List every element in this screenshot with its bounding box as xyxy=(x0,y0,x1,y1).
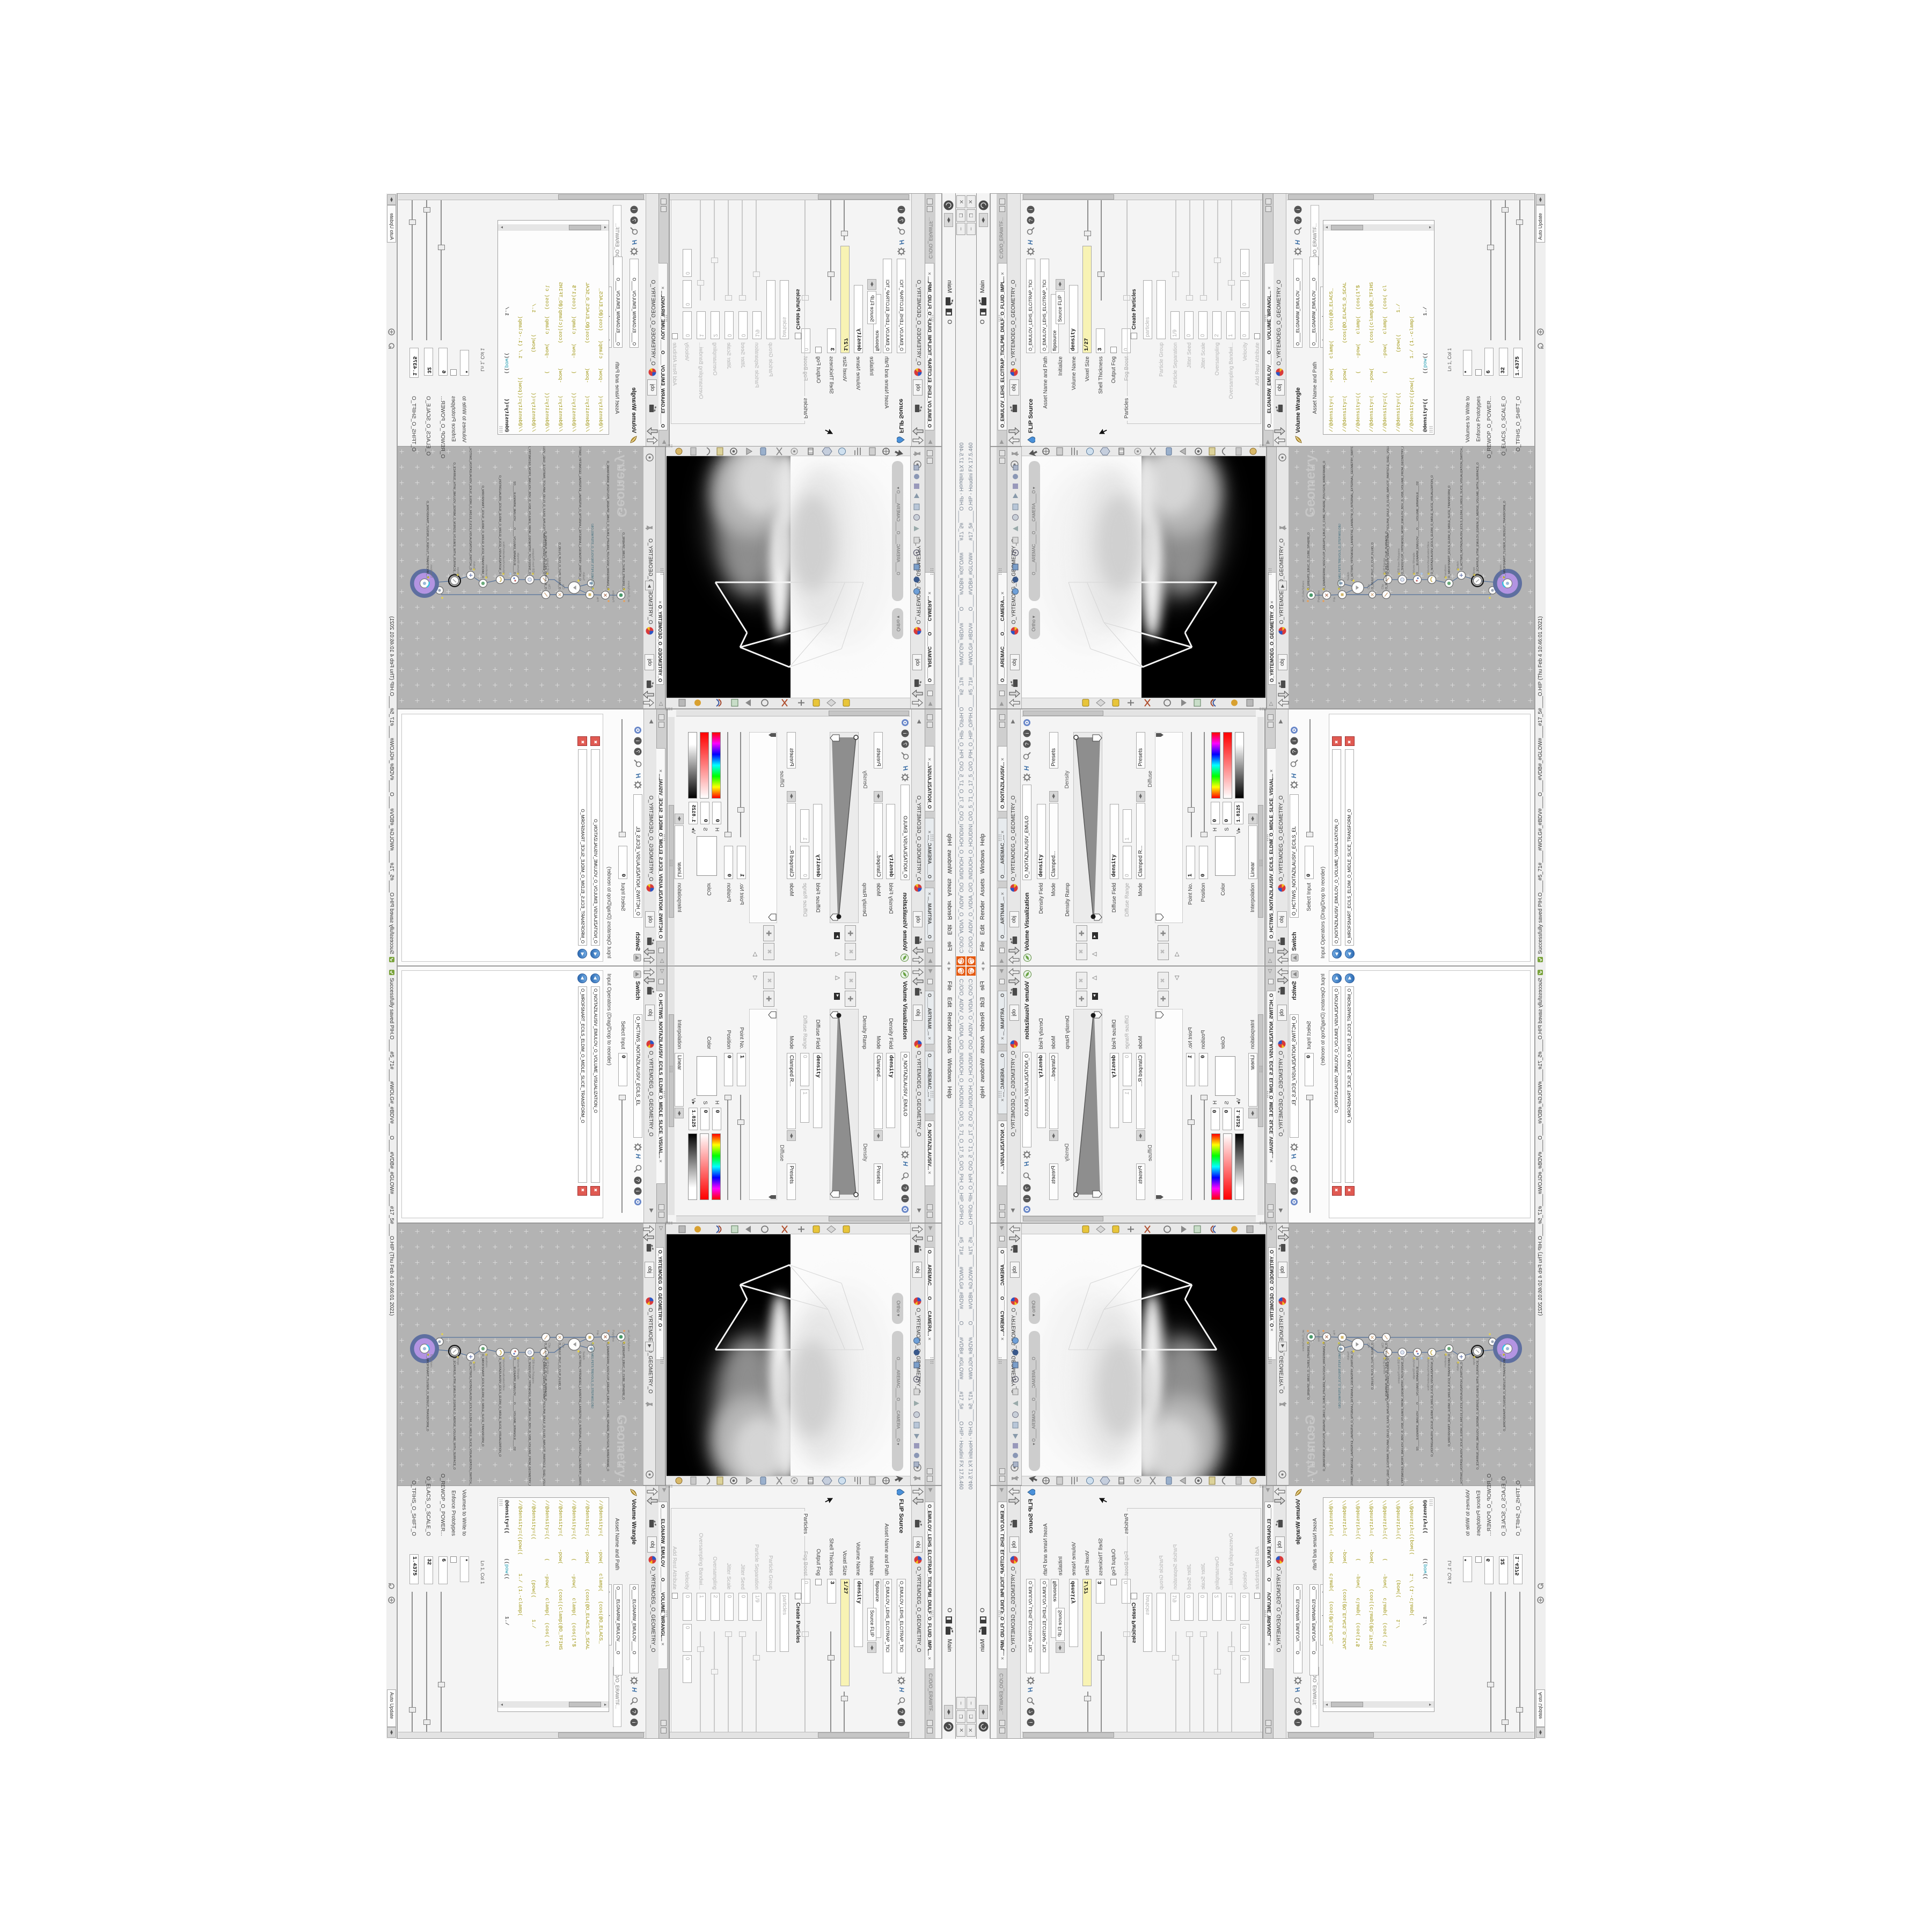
svg-text:i: i xyxy=(1292,740,1298,741)
svg-text:Switch: Switch xyxy=(582,572,585,581)
svg-text:O_EMULOV_LEHS_ELCITRAP_TICILPM: O_EMULOV_LEHS_ELCITRAP_TICILPMI_DIULF_D_… xyxy=(1387,1358,1390,1485)
svg-text:Volume Wrangle: Volume Wrangle xyxy=(1413,1358,1416,1379)
svg-text:O_NOITAZILAUSIV_ECILS_ELDIM_O_: O_NOITAZILAUSIV_ECILS_ELDIM_O_MIDLE_SLIC… xyxy=(1431,1358,1434,1457)
svg-text:?: ? xyxy=(1024,742,1030,745)
svg-text:FLIP Source: FLIP Source xyxy=(1383,1358,1386,1374)
svg-text:Merge: Merge xyxy=(1473,1357,1476,1365)
svg-text:O_EMULOV_LEHS_ELCITRAP_TICILPM: O_EMULOV_LEHS_ELCITRAP_TICILPMI_DIULF_D_… xyxy=(542,447,545,574)
svg-text:O_NOITAZILAUSIV_ECILS_ELDIM_O_: O_NOITAZILAUSIV_ECILS_ELDIM_O_MIDLE_SLIC… xyxy=(498,475,501,574)
svg-text:File: File xyxy=(596,1330,599,1335)
svg-text:?: ? xyxy=(634,750,640,753)
svg-text:O_JBO.M01.PETS.TREVOLS_O_STEP.: O_JBO.M01.PETS.TREVOLS_O_STEP.M01.OBJ xyxy=(590,524,594,589)
svg-text:Merge: Merge xyxy=(456,567,459,575)
svg-text:PolyWire: PolyWire xyxy=(1318,590,1321,602)
svg-text:VolumeVisualizationSlice: VolumeVisualizationSlice xyxy=(502,1358,505,1391)
svg-text:Volume Wrangle: Volume Wrangle xyxy=(516,553,519,574)
svg-text:O_EREHPS_EBUC_O_CUBE_SPHERE_O: O_EREHPS_EBUC_O_CUBE_SPHERE_O xyxy=(1307,532,1311,590)
svg-text:O_EMARFERIW_NOGYLOP_EREHPS_EBU: O_EMARFERIW_NOGYLOP_EREHPS_EBUC_O_CUBE_S… xyxy=(1323,460,1326,590)
svg-text:O_MROFSNART_TLUSER_O_RESULT_TR: O_MROFSNART_TLUSER_O_RESULT_TRANSFORM_O xyxy=(426,501,429,578)
svg-text:VolumeVisualizationSlice: VolumeVisualizationSlice xyxy=(1427,1358,1430,1391)
svg-text:i: i xyxy=(1028,209,1034,210)
svg-text:?: ? xyxy=(1296,1710,1301,1714)
svg-text:O_EREHPS_EBUC_O_CUBE_SPHERE_O: O_EREHPS_EBUC_O_CUBE_SPHERE_O xyxy=(621,1342,625,1400)
svg-text:O_EREHPS_EBUC_O_CUBE_SPHERE_O: O_EREHPS_EBUC_O_CUBE_SPHERE_O xyxy=(1307,1342,1311,1400)
svg-text:i: i xyxy=(898,1722,904,1723)
svg-text:PolyWire: PolyWire xyxy=(611,1330,614,1342)
svg-text:Clip: Clip xyxy=(561,584,565,589)
svg-text:O_DIULF_PILC_O_CLIP_FLUID_O: O_DIULF_PILC_O_CLIP_FLUID_O xyxy=(1371,1343,1374,1390)
svg-text:O_EMULOV_LEHS_ELCITRAP_TICILPM: O_EMULOV_LEHS_ELCITRAP_TICILPMI_DIULF_D_… xyxy=(542,1358,545,1485)
svg-text:O_HCTIWS_YRTEMOEG_LANRETXE_LAN: O_HCTIWS_YRTEMOEG_LANRETXE_LANRETNI_O_IN… xyxy=(1351,1351,1354,1485)
svg-text:O_NOITAZILAUSIV_ECILS_ELDIM_O_: O_NOITAZILAUSIV_ECILS_ELDIM_O_MIDLE_SLIC… xyxy=(498,1358,501,1457)
svg-text:Volume Wrangle: Volume Wrangle xyxy=(1413,553,1416,574)
svg-text:O_NOITAZILAUSIV_ECILS_ELDIM_O_: O_NOITAZILAUSIV_ECILS_ELDIM_O_MIDLE_SLIC… xyxy=(1431,475,1434,574)
svg-text:an_CubeSphere: an_CubeSphere xyxy=(1302,1330,1305,1351)
svg-text:VDB from Polygons: VDB from Polygons xyxy=(1397,548,1401,574)
svg-text:?: ? xyxy=(634,1179,640,1182)
svg-text:O_HCTIWS_YRTEMOEG_LANRETXE_LAN: O_HCTIWS_YRTEMOEG_LANRETXE_LANRETNI_O_IN… xyxy=(1351,447,1354,581)
svg-text:i: i xyxy=(1292,1190,1298,1191)
svg-text:O_DIULF_PILC_O_CLIP_FLUID_O: O_DIULF_PILC_O_CLIP_FLUID_O xyxy=(558,542,561,589)
svg-text:O_SNOGYLOP_YRTEMOEG_MORF_EMULO: O_SNOGYLOP_YRTEMOEG_MORF_EMULOV_BDV_D_VD… xyxy=(528,447,531,574)
svg-text:O_SNOGYLOP_YRTEMOEG_MORF_EMULO: O_SNOGYLOP_YRTEMOEG_MORF_EMULOV_BDV_D_VD… xyxy=(1401,447,1404,574)
svg-text:O_ECAFRUS_HTIW_EMULOV_EGREM_O_: O_ECAFRUS_HTIW_EMULOV_EGREM_O_MERGE_VOLU… xyxy=(452,1357,456,1470)
svg-text:VDB from Polygons: VDB from Polygons xyxy=(531,1358,535,1384)
svg-text:?: ? xyxy=(631,1710,636,1714)
svg-text:Transform: Transform xyxy=(1444,1354,1447,1367)
svg-text:FLIP Source: FLIP Source xyxy=(1383,558,1386,574)
svg-text:Geometry: Geometry xyxy=(614,1415,629,1477)
svg-text:O_EREHPS_EBUC_O_CUBE_SPHERE_O: O_EREHPS_EBUC_O_CUBE_SPHERE_O xyxy=(621,532,625,590)
svg-text:O_DIULF_PILC_O_CLIP_FLUID_O: O_DIULF_PILC_O_CLIP_FLUID_O xyxy=(558,1343,561,1390)
svg-text:O_EMARFERIW_NOGYLOP_EREHPS_EBU: O_EMARFERIW_NOGYLOP_EREHPS_EBUC_O_CUBE_S… xyxy=(1323,1342,1326,1472)
svg-text:i: i xyxy=(902,733,908,734)
svg-text:O_MROFSNART_TLUSER_O_RESULT_TR: O_MROFSNART_TLUSER_O_RESULT_TRANSFORM_O xyxy=(426,1354,429,1431)
svg-text:Switch: Switch xyxy=(1347,1351,1350,1360)
svg-text:?: ? xyxy=(631,218,636,222)
svg-text:Clip: Clip xyxy=(1381,584,1385,589)
svg-text:?: ? xyxy=(902,742,908,745)
svg-text:VolumeVisualizationSlice: VolumeVisualizationSlice xyxy=(1427,541,1430,574)
svg-text:an_CubeSphere: an_CubeSphere xyxy=(627,1330,630,1351)
svg-text:O_ECAFRUS_HTIW_EMULOV_EGREM_O_: O_ECAFRUS_HTIW_EMULOV_EGREM_O_MERGE_VOLU… xyxy=(1476,1357,1480,1470)
svg-text:O_MROFSNART_ECILS_ELDIM_O_MIDL: O_MROFSNART_ECILS_ELDIM_O_MIDLE_SLICE_TR… xyxy=(481,485,484,578)
svg-text:Transform: Transform xyxy=(1444,565,1447,578)
svg-text:O_EMULOV_LEHS_ELCITRAP_TICILPM: O_EMULOV_LEHS_ELCITRAP_TICILPMI_DIULF_D_… xyxy=(1387,447,1390,574)
svg-text:O_EMARFERIW_NOGYLOP_EREHPS_EBU: O_EMARFERIW_NOGYLOP_EREHPS_EBUC_O_CUBE_S… xyxy=(606,460,609,590)
svg-text:File: File xyxy=(596,597,599,602)
svg-text:Switch: Switch xyxy=(472,561,475,570)
svg-text:Merge: Merge xyxy=(1473,567,1476,575)
svg-text:i: i xyxy=(1296,1722,1301,1723)
svg-text:FLIP Source: FLIP Source xyxy=(546,558,549,574)
svg-text:O_MROFSNART_ECILS_ELDIM_O_MIDL: O_MROFSNART_ECILS_ELDIM_O_MIDLE_SLICE_TR… xyxy=(481,1354,484,1447)
svg-text:O_JBO.M01.PETS.TREVOLS_O_STEP.: O_JBO.M01.PETS.TREVOLS_O_STEP.M01.OBJ xyxy=(590,1343,594,1408)
svg-text:O_HCTIWS_YRTEMOEG_LANRETXE_LAN: O_HCTIWS_YRTEMOEG_LANRETXE_LANRETNI_O_IN… xyxy=(578,447,581,581)
svg-text:O_JBO.M01.PETS.TREVOLS_O_STEP.: O_JBO.M01.PETS.TREVOLS_O_STEP.M01.OBJ xyxy=(1338,1343,1342,1408)
svg-text:Switch: Switch xyxy=(472,1362,475,1371)
svg-text:i: i xyxy=(1024,733,1030,734)
svg-text:O____ELGNARW_EMULOV____O____VO: O____ELGNARW_EMULOV____O____VOLUME_WRANG… xyxy=(513,1358,516,1451)
svg-text:i: i xyxy=(902,1198,908,1199)
svg-text:i: i xyxy=(898,209,904,210)
svg-text:i: i xyxy=(1024,1198,1030,1199)
svg-text:Transform: Transform xyxy=(1499,1354,1503,1367)
svg-text:VDB from Polygons: VDB from Polygons xyxy=(531,548,535,574)
svg-text:Switch: Switch xyxy=(582,1351,585,1360)
svg-text:O____ELGNARW_EMULOV____O____VO: O____ELGNARW_EMULOV____O____VOLUME_WRANG… xyxy=(1416,481,1419,574)
svg-text:Switch: Switch xyxy=(1457,1362,1460,1371)
svg-text:O_MROFSNART_TLUSER_O_RESULT_TR: O_MROFSNART_TLUSER_O_RESULT_TRANSFORM_O xyxy=(1503,501,1506,578)
svg-text:Volume Wrangle: Volume Wrangle xyxy=(516,1358,519,1379)
svg-text:O_HCTIWS_NOITAZILAUSIV_ECILS_E: O_HCTIWS_NOITAZILAUSIV_ECILS_ELDIM_O_MID… xyxy=(469,447,472,570)
svg-text:Switch: Switch xyxy=(1457,561,1460,570)
svg-text:PolyWire: PolyWire xyxy=(611,590,614,602)
svg-text:Geometry: Geometry xyxy=(1303,1415,1318,1477)
svg-text:O_HCTIWS_NOITAZILAUSIV_ECILS_E: O_HCTIWS_NOITAZILAUSIV_ECILS_ELDIM_O_MID… xyxy=(469,1362,472,1485)
svg-text:i: i xyxy=(631,209,636,210)
svg-text:File: File xyxy=(1333,597,1336,602)
svg-text:i: i xyxy=(631,1722,636,1723)
svg-text:an_CubeSphere: an_CubeSphere xyxy=(1302,581,1305,602)
svg-text:?: ? xyxy=(1028,218,1034,222)
svg-text:FLIP Source: FLIP Source xyxy=(546,1358,549,1374)
svg-text:O_ECAFRUS_HTIW_EMULOV_EGREM_O_: O_ECAFRUS_HTIW_EMULOV_EGREM_O_MERGE_VOLU… xyxy=(1476,462,1480,575)
svg-text:O_MROFSNART_ECILS_ELDIM_O_MIDL: O_MROFSNART_ECILS_ELDIM_O_MIDLE_SLICE_TR… xyxy=(1448,1354,1451,1447)
svg-text:?: ? xyxy=(1292,750,1298,753)
svg-text:O_JBO.M01.PETS.TREVOLS_O_STEP.: O_JBO.M01.PETS.TREVOLS_O_STEP.M01.OBJ xyxy=(1338,524,1342,589)
svg-text:Switch: Switch xyxy=(1347,572,1350,581)
svg-text:O_MROFSNART_TLUSER_O_RESULT_TR: O_MROFSNART_TLUSER_O_RESULT_TRANSFORM_O xyxy=(1503,1354,1506,1431)
svg-text:?: ? xyxy=(902,1187,908,1190)
svg-text:?: ? xyxy=(1028,1710,1034,1714)
svg-text:?: ? xyxy=(1024,1187,1030,1190)
svg-text:Geometry: Geometry xyxy=(1303,455,1318,517)
svg-text:Clip: Clip xyxy=(1367,584,1371,589)
svg-text:Merge: Merge xyxy=(456,1357,459,1365)
svg-text:VDB from Polygons: VDB from Polygons xyxy=(1397,1358,1401,1384)
svg-text:?: ? xyxy=(1296,218,1301,222)
svg-text:O_ECAFRUS_HTIW_EMULOV_EGREM_O_: O_ECAFRUS_HTIW_EMULOV_EGREM_O_MERGE_VOLU… xyxy=(452,462,456,575)
svg-text:PolyWire: PolyWire xyxy=(1318,1330,1321,1342)
svg-text:?: ? xyxy=(898,218,904,222)
svg-text:?: ? xyxy=(1292,1179,1298,1182)
svg-text:Transform: Transform xyxy=(429,1354,433,1367)
svg-text:O_DIULF_PILC_O_CLIP_FLUID_O: O_DIULF_PILC_O_CLIP_FLUID_O xyxy=(1371,542,1374,589)
svg-text:Transform: Transform xyxy=(429,565,433,578)
svg-text:O_SNOGYLOP_YRTEMOEG_MORF_EMULO: O_SNOGYLOP_YRTEMOEG_MORF_EMULOV_BDV_D_VD… xyxy=(1401,1358,1404,1485)
svg-text:Geometry: Geometry xyxy=(614,455,629,517)
svg-text:O_HCTIWS_NOITAZILAUSIV_ECILS_E: O_HCTIWS_NOITAZILAUSIV_ECILS_ELDIM_O_MID… xyxy=(1460,1362,1463,1485)
svg-text:Transform: Transform xyxy=(485,565,488,578)
svg-text:i: i xyxy=(634,1190,640,1191)
svg-text:Clip: Clip xyxy=(1381,1343,1385,1348)
svg-text:O____ELGNARW_EMULOV____O____VO: O____ELGNARW_EMULOV____O____VOLUME_WRANG… xyxy=(1416,1358,1419,1451)
svg-text:O_HCTIWS_YRTEMOEG_LANRETXE_LAN: O_HCTIWS_YRTEMOEG_LANRETXE_LANRETNI_O_IN… xyxy=(578,1351,581,1485)
svg-text:VolumeVisualizationSlice: VolumeVisualizationSlice xyxy=(502,541,505,574)
svg-text:O_MROFSNART_ECILS_ELDIM_O_MIDL: O_MROFSNART_ECILS_ELDIM_O_MIDLE_SLICE_TR… xyxy=(1448,485,1451,578)
svg-text:i: i xyxy=(634,740,640,741)
svg-text:Transform: Transform xyxy=(485,1354,488,1367)
svg-text:i: i xyxy=(1296,209,1301,210)
svg-text:O_EMARFERIW_NOGYLOP_EREHPS_EBU: O_EMARFERIW_NOGYLOP_EREHPS_EBUC_O_CUBE_S… xyxy=(606,1342,609,1472)
svg-text:Clip: Clip xyxy=(1367,1343,1371,1348)
svg-text:i: i xyxy=(1028,1722,1034,1723)
svg-text:Clip: Clip xyxy=(547,584,551,589)
svg-text:O____ELGNARW_EMULOV____O____VO: O____ELGNARW_EMULOV____O____VOLUME_WRANG… xyxy=(513,481,516,574)
svg-text:Clip: Clip xyxy=(547,1343,551,1348)
svg-text:Transform: Transform xyxy=(1499,565,1503,578)
svg-text:File: File xyxy=(1333,1330,1336,1335)
svg-text:Clip: Clip xyxy=(561,1343,565,1348)
svg-text:O_SNOGYLOP_YRTEMOEG_MORF_EMULO: O_SNOGYLOP_YRTEMOEG_MORF_EMULOV_BDV_D_VD… xyxy=(528,1358,531,1485)
svg-text:?: ? xyxy=(898,1710,904,1714)
svg-text:an_CubeSphere: an_CubeSphere xyxy=(627,581,630,602)
svg-text:O_HCTIWS_NOITAZILAUSIV_ECILS_E: O_HCTIWS_NOITAZILAUSIV_ECILS_ELDIM_O_MID… xyxy=(1460,447,1463,570)
